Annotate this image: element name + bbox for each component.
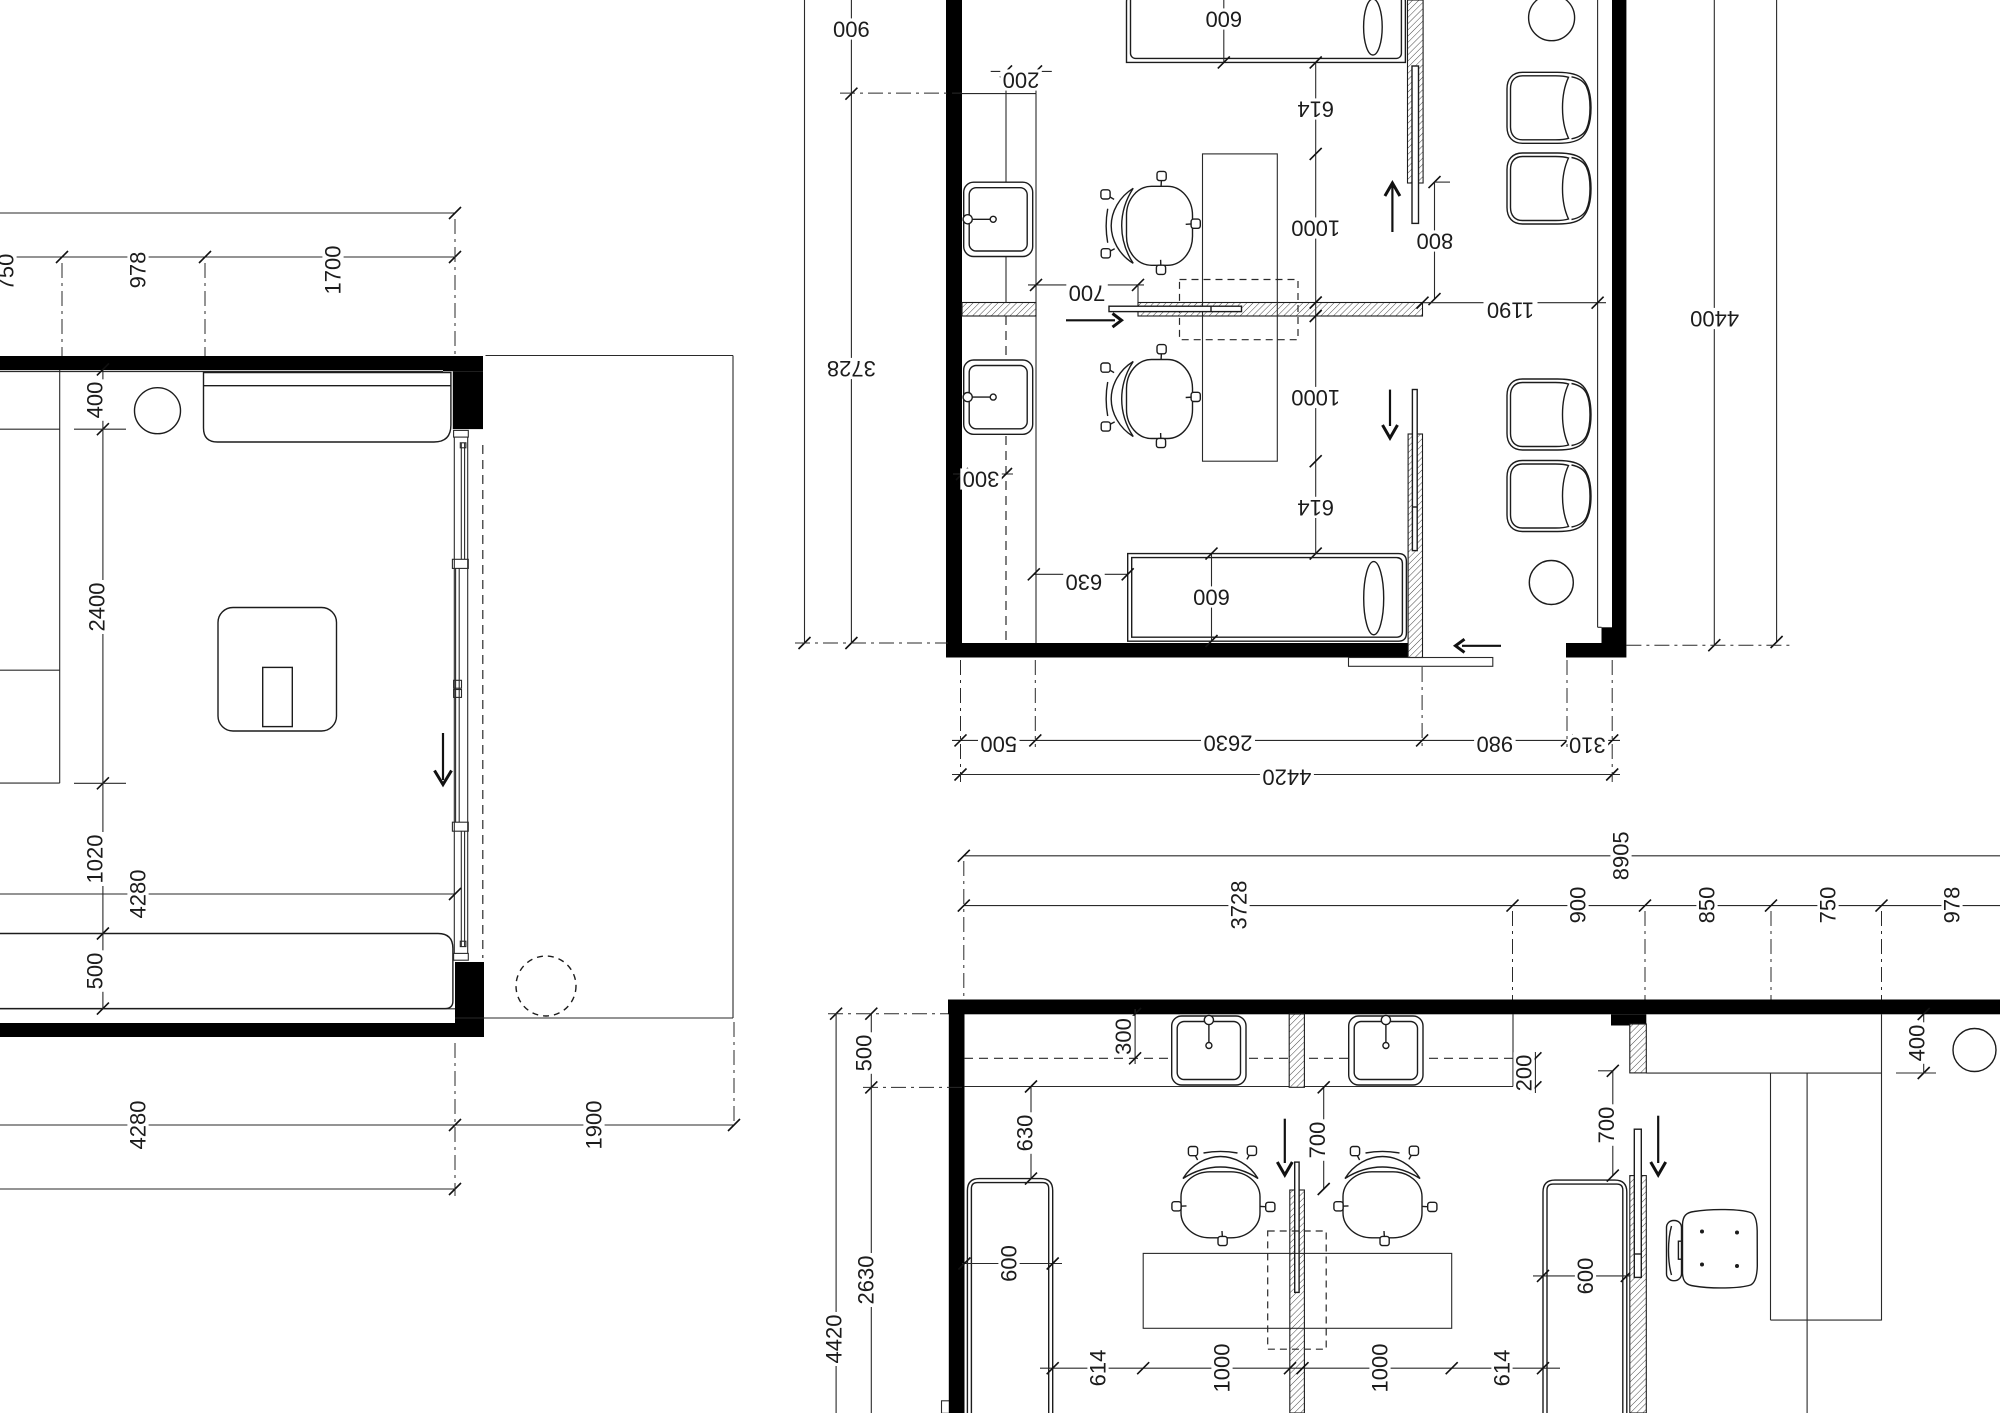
svg-text:614: 614 (1085, 1350, 1110, 1387)
svg-text:1000: 1000 (1291, 216, 1340, 241)
svg-text:200: 200 (1511, 1055, 1536, 1092)
svg-text:600: 600 (996, 1245, 1021, 1282)
svg-text:4400: 4400 (1690, 306, 1739, 331)
svg-text:630: 630 (1066, 570, 1103, 595)
svg-text:600: 600 (1193, 585, 1230, 610)
svg-text:4420: 4420 (1262, 765, 1311, 790)
svg-text:614: 614 (1297, 97, 1334, 122)
svg-text:2630: 2630 (1204, 731, 1253, 756)
svg-text:500: 500 (980, 732, 1017, 757)
svg-text:850: 850 (1694, 887, 1719, 924)
svg-text:750: 750 (0, 254, 18, 291)
svg-text:1190: 1190 (1487, 298, 1534, 323)
svg-text:700: 700 (1305, 1122, 1330, 1159)
svg-text:900: 900 (833, 17, 870, 42)
svg-text:978: 978 (125, 252, 150, 289)
svg-text:3728: 3728 (827, 356, 876, 381)
svg-text:500: 500 (851, 1035, 876, 1072)
svg-text:300: 300 (963, 467, 1000, 492)
svg-text:200: 200 (1003, 68, 1040, 93)
svg-text:2400: 2400 (84, 583, 109, 632)
svg-text:630: 630 (1012, 1115, 1037, 1152)
svg-text:900: 900 (1565, 887, 1590, 924)
svg-text:4280: 4280 (125, 870, 150, 919)
svg-text:978: 978 (1939, 887, 1964, 924)
svg-text:300: 300 (1111, 1018, 1136, 1055)
svg-text:2630: 2630 (853, 1256, 878, 1305)
svg-text:1000: 1000 (1291, 385, 1340, 410)
svg-text:1700: 1700 (320, 246, 345, 295)
svg-text:500: 500 (82, 953, 107, 990)
svg-text:1900: 1900 (581, 1101, 606, 1150)
svg-text:400: 400 (1904, 1025, 1929, 1062)
svg-text:700: 700 (1069, 281, 1106, 306)
svg-text:8905: 8905 (1608, 831, 1633, 880)
svg-text:310: 310 (1569, 733, 1606, 758)
svg-text:4280: 4280 (125, 1101, 150, 1150)
svg-text:4420: 4420 (821, 1315, 846, 1364)
svg-text:600: 600 (1573, 1258, 1598, 1295)
svg-text:614: 614 (1489, 1350, 1514, 1387)
svg-text:400: 400 (82, 382, 107, 419)
svg-text:800: 800 (1417, 229, 1454, 254)
svg-text:3728: 3728 (1226, 881, 1251, 930)
svg-text:700: 700 (1594, 1107, 1619, 1144)
svg-text:600: 600 (1205, 7, 1242, 32)
svg-text:1000: 1000 (1367, 1344, 1392, 1393)
svg-text:1000: 1000 (1209, 1344, 1234, 1393)
svg-text:614: 614 (1297, 495, 1334, 520)
svg-text:750: 750 (1815, 887, 1840, 924)
svg-text:980: 980 (1476, 732, 1513, 757)
svg-text:1020: 1020 (82, 835, 107, 884)
